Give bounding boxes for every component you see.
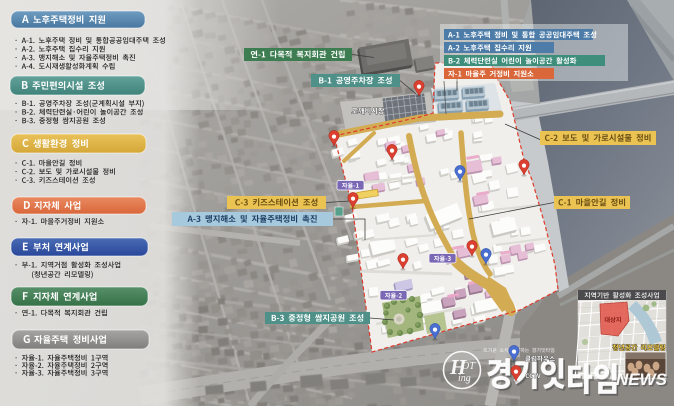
svg-text:OT: OT	[462, 361, 476, 372]
svg-text:ing: ing	[458, 373, 471, 384]
svg-text:NEWS: NEWS	[616, 370, 668, 389]
